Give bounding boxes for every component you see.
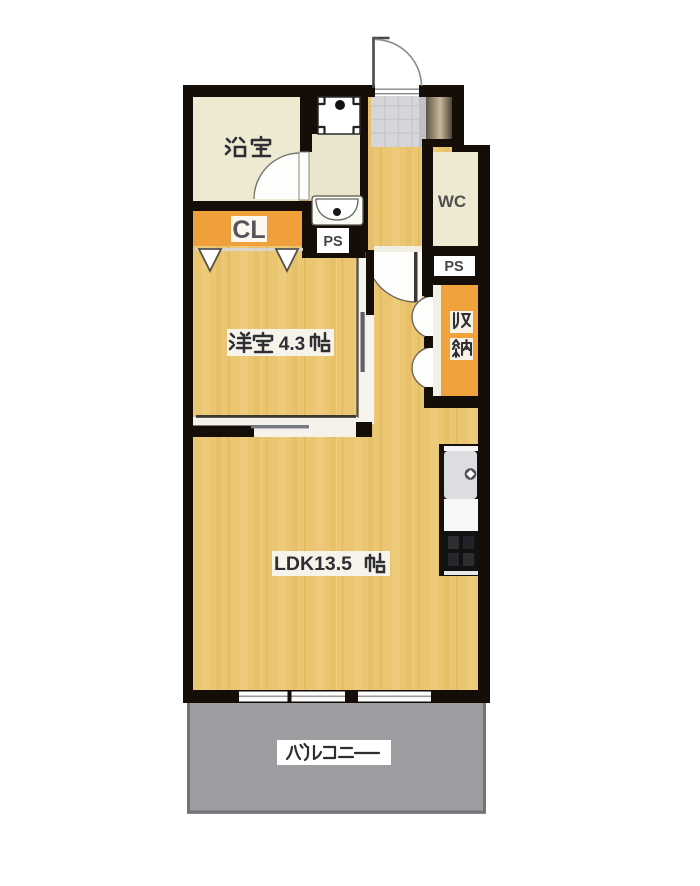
svg-text:LDK13.5: LDK13.5 <box>274 553 352 575</box>
svg-text:CL: CL <box>232 216 265 244</box>
svg-text:PS: PS <box>444 259 464 275</box>
svg-text:WC: WC <box>438 192 466 211</box>
svg-text:4.3: 4.3 <box>279 334 305 355</box>
svg-text:PS: PS <box>323 234 343 250</box>
